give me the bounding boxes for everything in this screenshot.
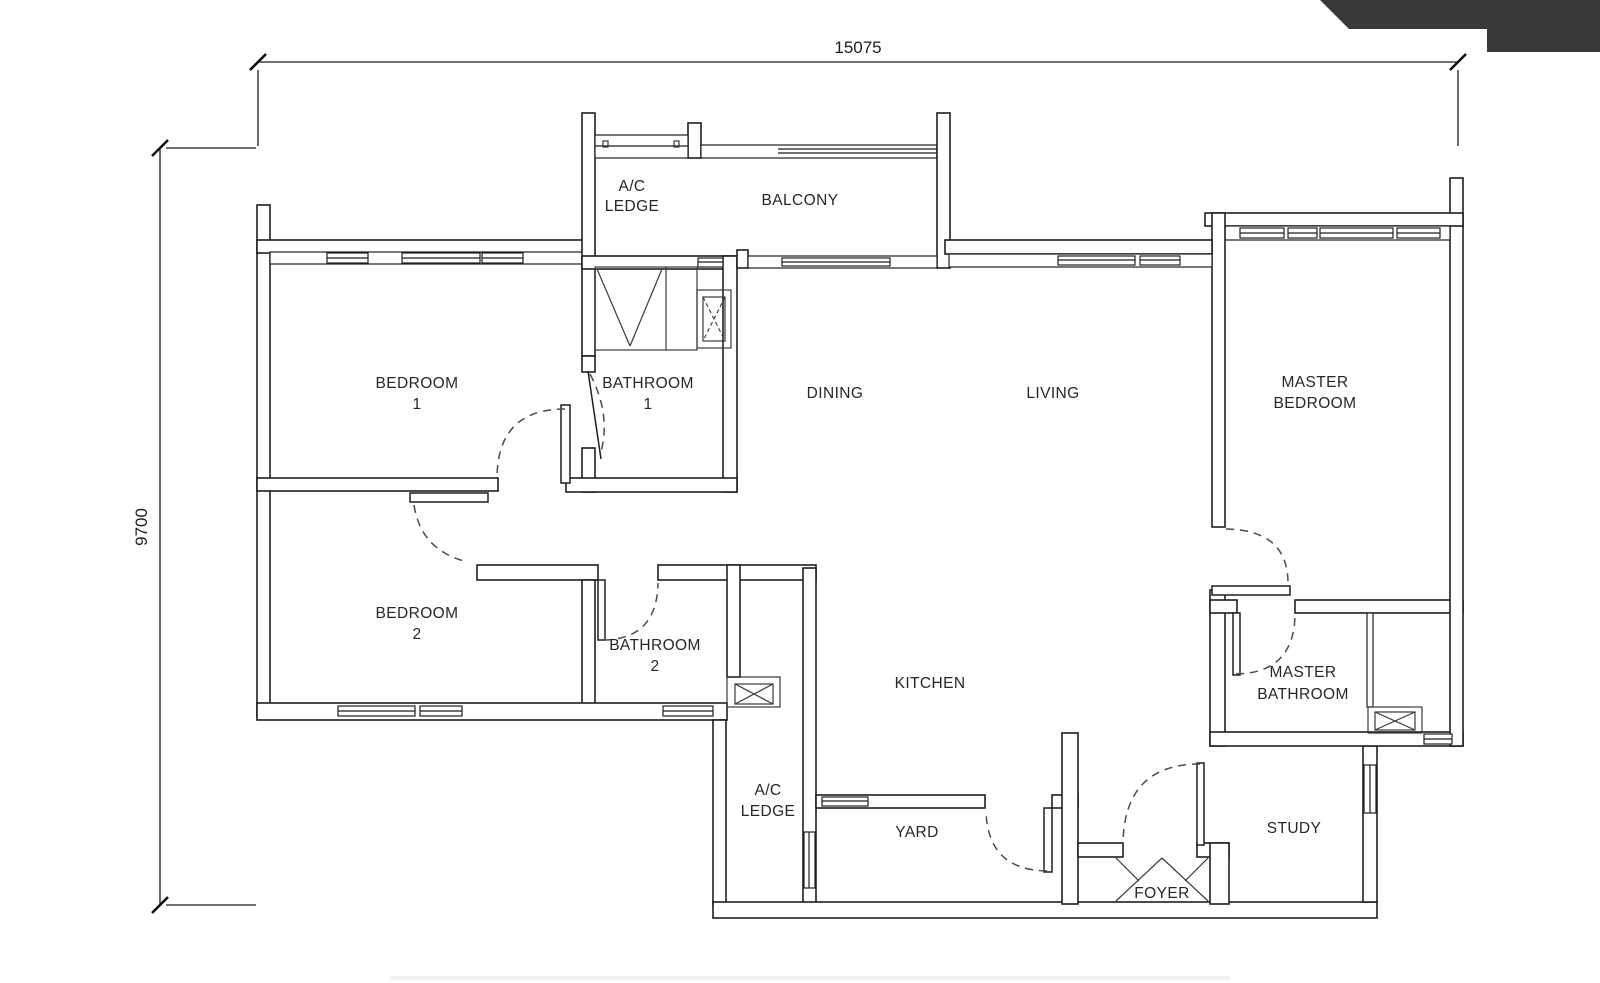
room-label-bedroom-2: 2	[412, 626, 421, 643]
post-ac-rail-mid	[688, 123, 701, 158]
room-label-bathroom-2: BATHROOM	[609, 637, 701, 654]
window	[327, 253, 368, 263]
room-label-bathroom-2: 2	[650, 658, 659, 675]
corner-banner	[1320, 0, 1600, 52]
room-label-ac-ledge-bottom: A/C	[754, 782, 781, 799]
wall-living-top	[945, 240, 1212, 254]
page-edge-artifact	[390, 976, 1230, 980]
door-bedroom2	[410, 493, 488, 562]
wall-foyer-top-left	[1078, 843, 1123, 857]
room-label-bedroom-2: BEDROOM	[376, 605, 459, 622]
window	[804, 832, 815, 888]
post-slider-left	[737, 250, 748, 268]
room-labels: A/C LEDGE BALCONY BEDROOM 1 BATHROOM 1 D…	[376, 178, 1357, 902]
room-label-dining: DINING	[807, 385, 864, 402]
dimension-horizontal: 15075	[250, 38, 1466, 146]
floor-plan-page: 15075 9700	[0, 0, 1600, 983]
wall-left-outer	[257, 205, 270, 717]
door-entry	[1123, 763, 1204, 845]
window	[1364, 765, 1376, 813]
room-label-bedroom-1: 1	[412, 396, 421, 413]
windows	[327, 228, 1452, 888]
wall-bath1-bottom	[566, 478, 737, 492]
wall-acledge2-left	[713, 720, 726, 905]
window	[1140, 256, 1180, 265]
room-label-foyer: FOYER	[1134, 885, 1189, 902]
door-bedroom1	[497, 405, 570, 483]
wall-kitchen-right	[1062, 733, 1078, 904]
wall-mbath-top	[1295, 600, 1463, 613]
window-sliding-door	[782, 258, 890, 266]
window	[482, 253, 523, 263]
wall-mbath-partition	[1367, 613, 1373, 707]
room-label-living: LIVING	[1026, 385, 1079, 402]
wall-master-right	[1450, 178, 1463, 746]
floor-plan-canvas: 15075 9700	[0, 0, 1600, 983]
door-bathroom2	[598, 580, 658, 640]
dimension-vertical: 9700	[132, 140, 256, 913]
wall-bedroom1-bottom	[257, 478, 498, 491]
room-label-bathroom-1: BATHROOM	[602, 375, 694, 392]
room-label-balcony: BALCONY	[762, 192, 839, 209]
door-master-bedroom	[1212, 529, 1290, 595]
room-label-study: STUDY	[1267, 820, 1322, 837]
wall-bed2-bath2-divider	[582, 580, 595, 707]
dimension-width-label: 15075	[834, 38, 881, 57]
dimension-height-label: 9700	[132, 508, 151, 546]
room-label-master-bathroom: BATHROOM	[1257, 686, 1349, 703]
window	[338, 706, 415, 716]
wardrobe	[595, 267, 697, 350]
door-yard	[986, 808, 1052, 872]
shaft	[1368, 707, 1422, 733]
balcony-rail	[701, 145, 937, 158]
wall-mbath-top-stub	[1210, 600, 1237, 613]
window	[1058, 256, 1135, 265]
window	[663, 706, 713, 716]
window	[1288, 228, 1317, 238]
room-label-bathroom-1: 1	[643, 396, 652, 413]
wall-bedroom2-top-left	[477, 565, 598, 580]
wall-bath1-left-stub	[582, 356, 595, 372]
wall-master-top	[1205, 213, 1463, 226]
window	[822, 797, 868, 806]
wall-bath1-right	[723, 256, 737, 492]
window	[1424, 734, 1452, 744]
room-label-yard: YARD	[895, 824, 939, 841]
wall-acledge-left	[582, 113, 595, 356]
wall-bottom-left	[257, 703, 727, 720]
window	[420, 706, 462, 716]
room-label-master-bedroom: MASTER	[1282, 374, 1349, 391]
room-label-ac-ledge-bottom: LEDGE	[741, 803, 796, 820]
window	[1240, 228, 1284, 238]
window	[1397, 228, 1440, 238]
room-label-bedroom-1: BEDROOM	[376, 375, 459, 392]
window	[402, 253, 480, 263]
wall-bottom-main	[713, 902, 1377, 918]
room-label-kitchen: KITCHEN	[895, 675, 966, 692]
room-label-master-bathroom: MASTER	[1270, 664, 1337, 681]
shaft	[727, 677, 780, 707]
window	[698, 258, 723, 267]
wall-bath2-right	[727, 565, 740, 677]
room-label-master-bedroom: BEDROOM	[1274, 395, 1357, 412]
wall-bedroom1-top	[257, 240, 586, 253]
room-label-ac-ledge-top: LEDGE	[605, 198, 660, 215]
window	[1320, 228, 1393, 238]
wall-master-left	[1212, 213, 1225, 527]
wall-foyer-right	[1210, 843, 1229, 904]
room-label-ac-ledge-top: A/C	[618, 178, 645, 195]
